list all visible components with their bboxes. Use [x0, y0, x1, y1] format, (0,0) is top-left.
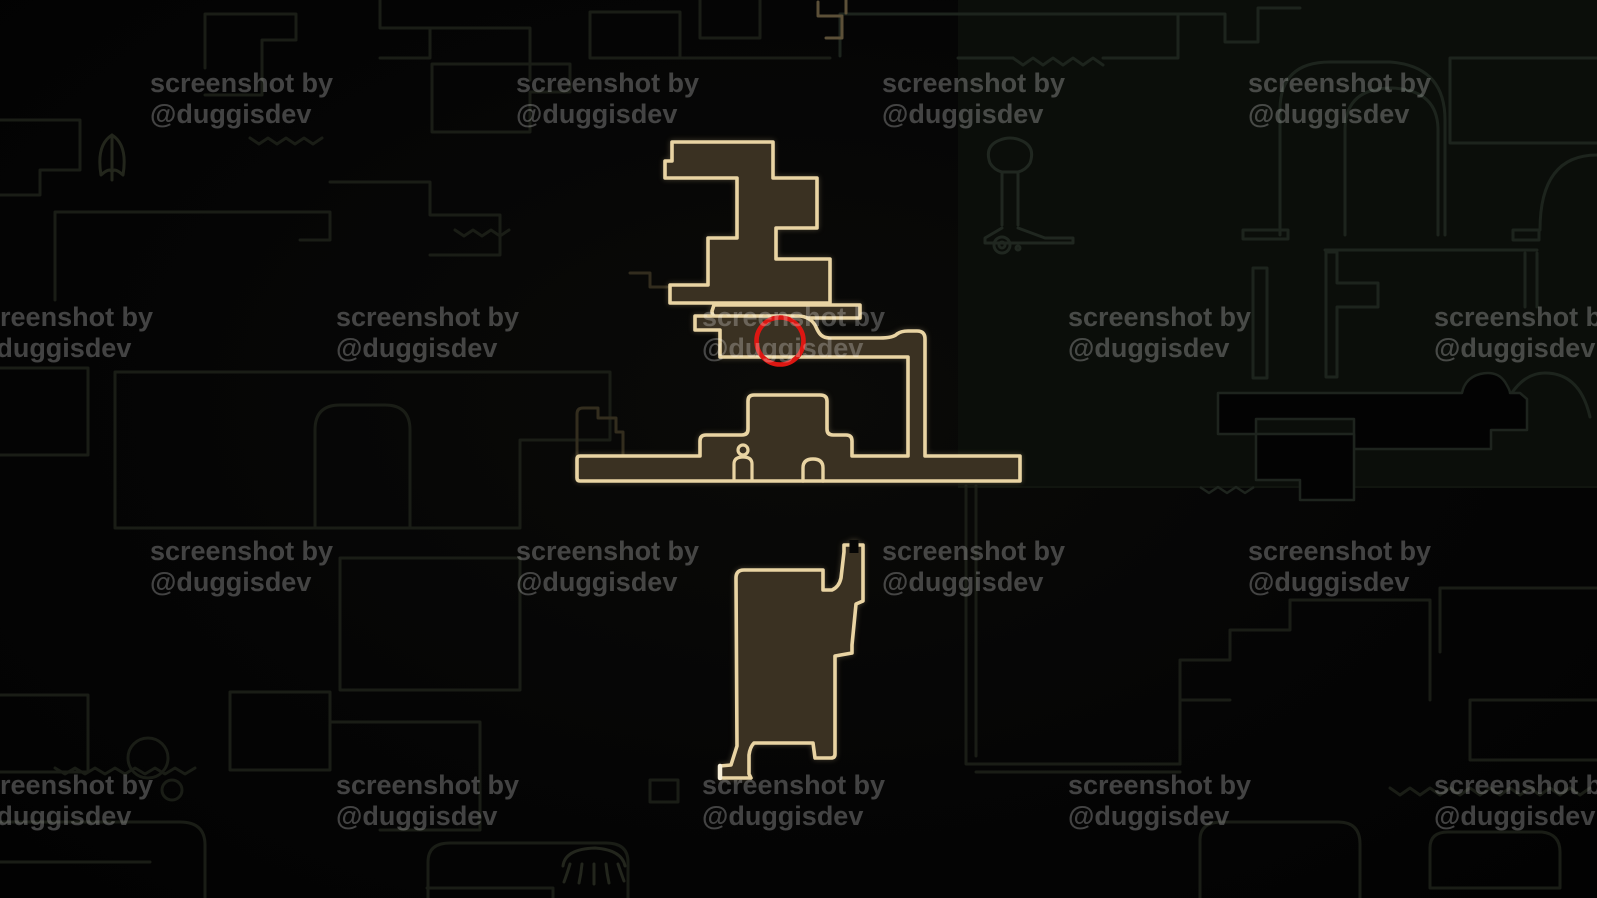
- bg-outline: [340, 558, 520, 690]
- bg-outline: [1180, 600, 1430, 700]
- jellyfish-tentacles: [564, 864, 624, 884]
- bg-outline: [432, 64, 570, 132]
- bg-outline: [205, 14, 296, 95]
- bg-outline: [966, 486, 1180, 772]
- bg-outline: [330, 722, 480, 830]
- bg-outline: [115, 372, 610, 528]
- bg-outline: [427, 888, 553, 898]
- bg-wavy-line: [250, 138, 322, 144]
- bg-outline: [1470, 700, 1597, 760]
- map-room-upper: [665, 142, 830, 303]
- bg-outline: [55, 212, 330, 300]
- map-room-corridor-band: [577, 316, 1020, 481]
- bg-outline: [1430, 832, 1560, 888]
- bg-outline: [0, 822, 205, 898]
- bg-warm-fragment: [818, 0, 846, 38]
- bg-outline: [590, 12, 830, 58]
- bg-outline: [1200, 822, 1360, 898]
- bg-outline: [330, 182, 500, 255]
- bg-outline: [0, 368, 88, 455]
- bg-warm-fragment: [630, 273, 667, 287]
- bg-outline: [0, 695, 88, 772]
- jellyfish-icon: [563, 848, 625, 884]
- bg-outline: [230, 692, 330, 770]
- bg-outline: [1180, 700, 1230, 764]
- bg-outline: [700, 0, 760, 38]
- explored-map-region: [577, 142, 1020, 778]
- chimney-opening: [850, 540, 859, 553]
- map-canvas: [0, 0, 1597, 898]
- bg-outline: [0, 120, 80, 195]
- moth-icon: [100, 135, 124, 180]
- bg-silhouette: [1256, 434, 1354, 500]
- bg-outline: [650, 780, 678, 802]
- bg-wavy-line: [1390, 788, 1590, 795]
- bg-outline: [380, 0, 530, 80]
- bg-outline: [428, 843, 628, 898]
- map-room-lower: [720, 545, 863, 778]
- bg-warm-fragment: [577, 408, 623, 456]
- bg-outline: [315, 405, 410, 528]
- bg-circle-marking: [162, 780, 182, 800]
- game-map-screenshot: screenshot by@duggisdevscreenshot by@dug…: [0, 0, 1597, 898]
- bg-outline: [1440, 588, 1597, 652]
